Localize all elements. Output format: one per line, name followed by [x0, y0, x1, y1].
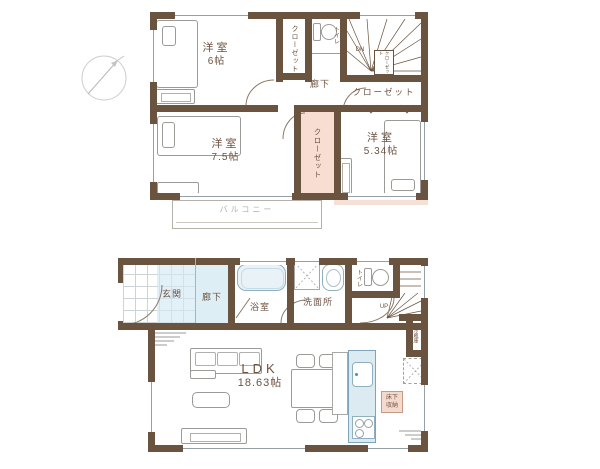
kitchen-sink [352, 362, 373, 387]
underfloor-storage: 床下 収納 [381, 391, 403, 413]
closet-left-label-box: クローゼット [283, 20, 305, 78]
window [148, 382, 155, 432]
washroom-label: 洗面所 [292, 297, 344, 308]
wall [340, 75, 428, 82]
coffee-table [192, 392, 230, 408]
window [240, 258, 286, 265]
underfloor-storage-line2: 収納 [382, 402, 402, 410]
window [360, 12, 415, 19]
kitchen-counter-front [332, 352, 348, 415]
wall [305, 12, 312, 82]
balcony-label: バルコニー [172, 205, 322, 215]
bathroom-label: 浴室 [235, 302, 285, 313]
room-name: 洋室 [157, 42, 276, 56]
window [368, 445, 408, 452]
hallway-2f-label: 廊下 [302, 79, 338, 90]
window [348, 193, 416, 200]
stairs-up-straight [399, 265, 421, 293]
wall [118, 323, 195, 330]
toilet-bowl [372, 269, 389, 286]
door-arc [246, 80, 276, 106]
room-label-7-5: 洋室 7.5帖 [157, 138, 294, 164]
closet-label: クローゼット [312, 128, 323, 179]
closet-label: クローゼット [289, 25, 299, 73]
window [180, 193, 292, 200]
floor-plan-canvas: バルコニー DN クローゼット [0, 0, 600, 469]
stair-closet-box: クローゼット [374, 50, 394, 75]
bathtub [237, 264, 286, 291]
window [295, 258, 319, 265]
dresser [155, 89, 195, 104]
room-label-5-34: 洋室 5.34帖 [341, 132, 421, 158]
toilet-2f-label-box: トイレ [331, 19, 341, 51]
ldk-name: LDK [200, 361, 320, 377]
room-size: 7.5帖 [157, 152, 294, 165]
toilet-1f-label-box: トイレ [354, 263, 364, 293]
ldk-size: 18.63帖 [200, 377, 320, 391]
tv-board [181, 428, 247, 444]
room-size: 5.34帖 [341, 146, 421, 159]
wall [406, 350, 428, 357]
refrigerator-label: 冷蔵庫 [413, 328, 420, 343]
wall [150, 105, 278, 112]
underfloor-storage-line1: 床下 [382, 394, 402, 402]
hallway-1f-label: 廊下 [195, 292, 229, 303]
pillow [391, 179, 415, 191]
window [421, 266, 428, 298]
toilet-tank [364, 268, 372, 286]
toilet-tank [313, 23, 321, 41]
room-size: 6帖 [157, 56, 276, 69]
window [175, 12, 248, 19]
stairs-dn-label: DN [352, 47, 368, 55]
wall [340, 12, 347, 82]
room-name: 洋室 [341, 132, 421, 146]
floor2-eaves-strip [334, 200, 428, 205]
ldk-label: LDK 18.63帖 [200, 361, 320, 391]
toilet-label: トイレ [332, 26, 341, 44]
stove [352, 416, 375, 439]
closet-middle-label-box: クローゼット [301, 116, 334, 190]
entrance-label: 玄関 [152, 289, 192, 300]
window [421, 122, 428, 180]
wash-basin [322, 264, 344, 291]
closet-top-right-label: クローゼット [347, 87, 421, 98]
wall [276, 12, 283, 82]
wall [340, 105, 428, 112]
room-name: 洋室 [157, 138, 294, 152]
window [421, 385, 428, 431]
toilet-label: トイレ [355, 269, 364, 287]
window [183, 445, 305, 452]
refrigerator-label-box: 冷蔵庫 [411, 322, 421, 349]
entrance-steps [152, 331, 188, 347]
stair-closet-label: クローゼット [378, 51, 390, 74]
wall [294, 112, 301, 193]
wall [334, 112, 341, 193]
wall [195, 323, 428, 330]
wall [228, 258, 235, 323]
dining-chair [296, 409, 315, 423]
balcony-inner-line [176, 222, 318, 223]
window [150, 30, 157, 82]
window [150, 124, 157, 182]
entrance-hall-divider [195, 258, 196, 323]
wall [294, 105, 341, 112]
door-arc [358, 296, 394, 323]
washing-machine-pan [294, 262, 320, 290]
wall [287, 258, 294, 323]
compass-icon [76, 46, 132, 102]
sliding-door [312, 50, 340, 57]
room-label-6: 洋室 6帖 [157, 42, 276, 68]
entrance-door-opening [118, 283, 123, 321]
wall [399, 314, 428, 321]
